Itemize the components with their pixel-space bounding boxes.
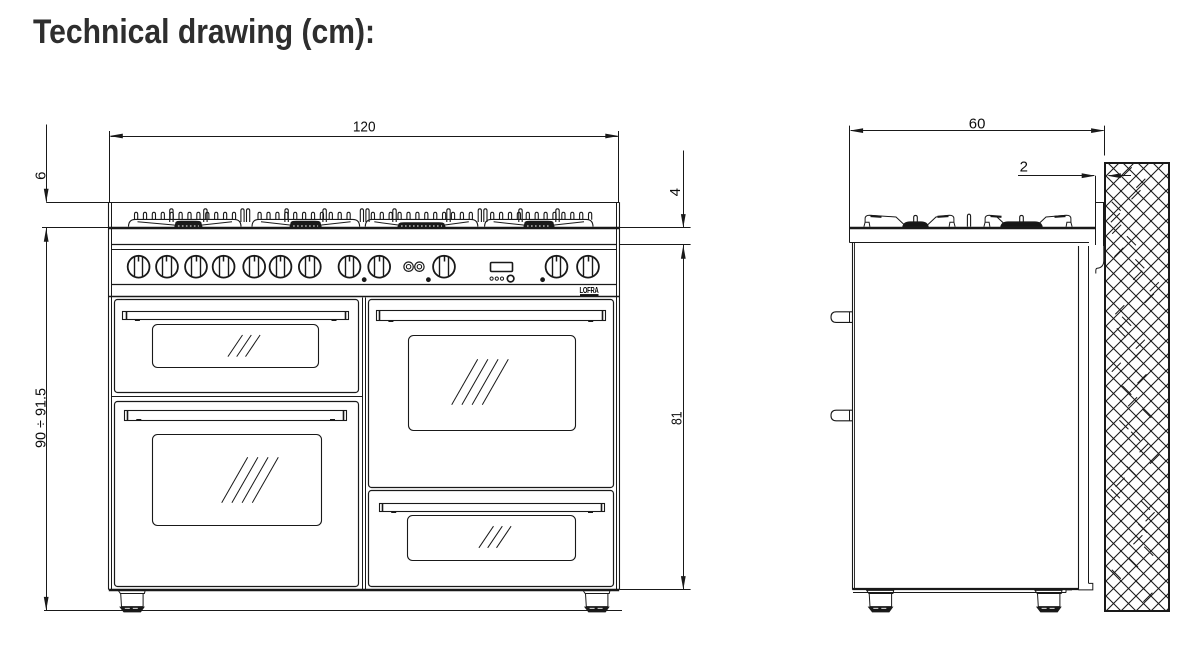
svg-text:2: 2 [1020,158,1028,175]
svg-text:90 ÷ 91.5: 90 ÷ 91.5 [32,388,49,448]
svg-text:6: 6 [32,172,49,180]
svg-text:120: 120 [353,119,376,136]
svg-text:4: 4 [667,188,684,196]
svg-text:60: 60 [969,116,986,133]
svg-text:LOFRA: LOFRA [580,286,599,295]
svg-text:81: 81 [668,411,685,425]
svg-text:Technical drawing (cm):: Technical drawing (cm): [33,13,375,51]
